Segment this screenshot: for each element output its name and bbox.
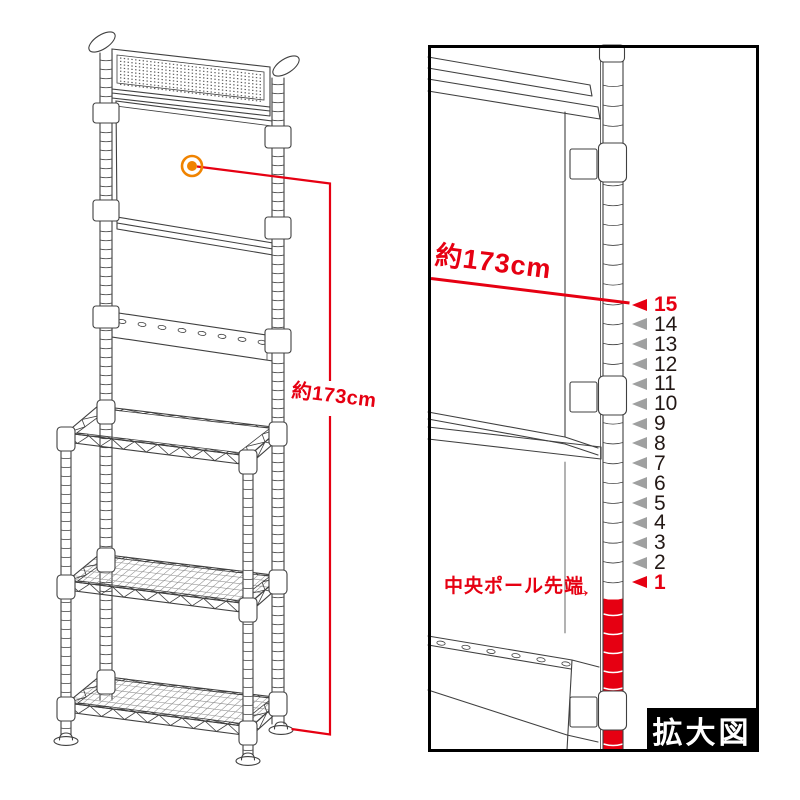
scale-marker: 6 — [632, 473, 666, 493]
scale-marker: 10 — [632, 394, 677, 414]
scale-marker-triangle-icon — [632, 398, 647, 410]
scale-marker-triangle-icon — [632, 537, 647, 549]
rear-poles — [100, 53, 284, 724]
scale-marker: 14 — [632, 314, 677, 334]
scale-marker-label: 15 — [654, 294, 677, 315]
scale-marker: 2 — [632, 553, 666, 573]
scale-marker-triangle-icon — [632, 318, 647, 330]
center-pole-tip-arrow-icon: → — [568, 577, 593, 603]
perforated-mesh — [120, 58, 262, 101]
scale-marker: 8 — [632, 433, 666, 453]
scale-marker-label: 4 — [654, 512, 666, 533]
front-legs — [61, 433, 253, 755]
scale-marker: 15 — [632, 295, 677, 315]
magnified-view-caption: 拡大図 — [647, 708, 757, 751]
scale-marker-label: 11 — [654, 373, 676, 394]
scale-marker-triangle-icon — [632, 477, 647, 489]
scale-marker-triangle-icon — [632, 517, 647, 529]
scale-marker-triangle-icon — [632, 338, 647, 350]
scale-marker-label: 1 — [654, 572, 666, 593]
product-diagram: 約173cm 約173cm 中央ポール先端 → 1514131211109876… — [0, 0, 800, 800]
scale-marker-triangle-icon — [632, 299, 647, 311]
scale-marker-label: 5 — [654, 493, 666, 514]
scale-marker: 1 — [632, 572, 666, 592]
scale-marker: 3 — [632, 533, 666, 553]
scale-marker-label: 14 — [654, 314, 677, 335]
scale-marker-label: 3 — [654, 532, 666, 553]
scale-marker-triangle-icon — [632, 378, 647, 390]
scale-marker: 4 — [632, 513, 666, 533]
scale-marker-triangle-icon — [632, 497, 647, 509]
scale-marker: 7 — [632, 453, 666, 473]
scale-marker-triangle-icon — [632, 358, 647, 370]
scale-marker-label: 10 — [654, 393, 677, 414]
magnified-line-art — [428, 45, 758, 751]
scale-marker: 11 — [632, 374, 676, 394]
scale-marker: 9 — [632, 414, 666, 434]
caption-text: 拡大図 — [653, 708, 752, 752]
scale-marker-label: 12 — [654, 354, 677, 375]
scale-marker-label: 9 — [654, 413, 666, 434]
hardware — [54, 28, 302, 765]
scale-marker-label: 13 — [654, 334, 677, 355]
scale-marker-triangle-icon — [632, 418, 647, 430]
scale-marker-label: 6 — [654, 473, 666, 494]
scale-marker: 12 — [632, 354, 677, 374]
center-pole-tip-label: 中央ポール先端 — [444, 577, 584, 597]
scale-marker-triangle-icon — [632, 557, 647, 569]
scale-marker-triangle-icon — [632, 576, 647, 588]
scale-marker: 13 — [632, 334, 677, 354]
line-art — [0, 0, 800, 800]
rack-line-art — [54, 28, 330, 765]
scale-marker-triangle-icon — [632, 457, 647, 469]
scale-marker-label: 2 — [654, 552, 666, 573]
scale-marker-triangle-icon — [632, 437, 647, 449]
scale-marker-label: 8 — [654, 433, 666, 454]
scale-marker-label: 7 — [654, 453, 666, 474]
scale-marker: 5 — [632, 493, 666, 513]
